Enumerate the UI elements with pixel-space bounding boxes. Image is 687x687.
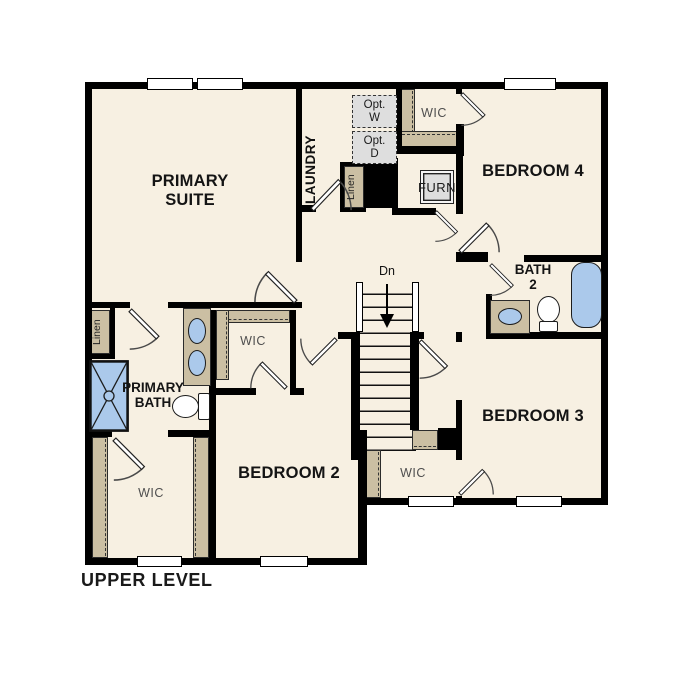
door-arc-wic-left bbox=[112, 437, 156, 481]
stair-rail-right bbox=[412, 282, 419, 332]
floor-area-main bbox=[85, 82, 608, 505]
stairs-down-arrow-icon bbox=[380, 314, 394, 328]
stair-divider bbox=[386, 284, 388, 316]
door-arc-primary-bath bbox=[128, 308, 170, 350]
label-stairs-down: Dn bbox=[372, 264, 402, 278]
door-arc-primary-suite bbox=[254, 260, 298, 304]
window bbox=[408, 496, 454, 507]
room-label-primary-suite: PRIMARY SUITE bbox=[110, 172, 270, 211]
wall bbox=[456, 255, 488, 262]
shelf bbox=[366, 450, 381, 498]
wall bbox=[364, 158, 398, 208]
floor-area-lower-left bbox=[85, 505, 367, 565]
wall bbox=[456, 496, 462, 505]
label-wic-top: WIC bbox=[408, 106, 460, 120]
sink bbox=[188, 350, 206, 376]
label-furnace: FURN bbox=[414, 180, 460, 195]
stair-rail-left bbox=[356, 282, 363, 332]
wall bbox=[290, 388, 304, 395]
window bbox=[137, 556, 182, 567]
window bbox=[260, 556, 308, 567]
wall bbox=[438, 428, 460, 450]
shelf bbox=[193, 437, 209, 558]
optional-washer-box: Opt. W bbox=[352, 95, 397, 128]
toilet-tank bbox=[539, 321, 558, 332]
door-arc-wic-understairs bbox=[458, 460, 494, 496]
label-wic-understairs: WIC bbox=[386, 466, 440, 480]
sink bbox=[188, 318, 206, 344]
label-wic-middle: WIC bbox=[226, 334, 280, 348]
room-label-laundry: LAUNDRY bbox=[303, 95, 331, 245]
window bbox=[147, 78, 193, 90]
shelf bbox=[400, 131, 462, 147]
wall bbox=[85, 558, 367, 565]
wall bbox=[358, 430, 367, 565]
room-label-bedroom2: BEDROOM 2 bbox=[216, 464, 362, 483]
toilet-tank bbox=[198, 393, 210, 420]
wall bbox=[392, 208, 436, 215]
floor-plan: Opt. W Opt. D PRIMARY SUITE LAUNDRY Line… bbox=[0, 0, 687, 687]
wall bbox=[396, 146, 462, 154]
door-arc-wic-middle bbox=[250, 352, 288, 390]
window bbox=[197, 78, 243, 90]
door-arc-hall bbox=[300, 337, 338, 375]
wall bbox=[92, 354, 115, 359]
label-linen-top: Linen bbox=[345, 167, 363, 207]
toilet-bowl bbox=[537, 296, 560, 323]
door-arc-bedroom3 bbox=[418, 339, 458, 379]
label-linen-left: Linen bbox=[91, 312, 109, 352]
wall bbox=[110, 308, 115, 358]
room-label-bedroom4: BEDROOM 4 bbox=[462, 162, 604, 181]
optional-dryer-label: Opt. D bbox=[364, 135, 386, 159]
bathtub bbox=[571, 262, 602, 328]
room-label-primary-bath: PRIMARY BATH bbox=[112, 380, 194, 410]
wall bbox=[360, 498, 608, 505]
label-wic-left: WIC bbox=[118, 486, 184, 500]
optional-washer-label: Opt. W bbox=[364, 99, 386, 123]
optional-dryer-box: Opt. D bbox=[352, 131, 397, 164]
plan-title: UPPER LEVEL bbox=[81, 570, 213, 591]
door-arc-wic-top bbox=[460, 92, 494, 126]
shelf bbox=[92, 437, 108, 558]
room-label-bath2: BATH 2 bbox=[504, 262, 562, 292]
window bbox=[516, 496, 562, 507]
wall bbox=[296, 82, 302, 262]
wall bbox=[290, 310, 296, 395]
window bbox=[504, 78, 556, 90]
shelf bbox=[412, 430, 438, 450]
sink bbox=[498, 308, 522, 325]
wall bbox=[524, 255, 608, 262]
stairs bbox=[360, 282, 416, 454]
wall bbox=[601, 82, 608, 505]
door-arc-bedroom4 bbox=[458, 212, 500, 254]
room-label-bedroom3: BEDROOM 3 bbox=[460, 407, 606, 426]
